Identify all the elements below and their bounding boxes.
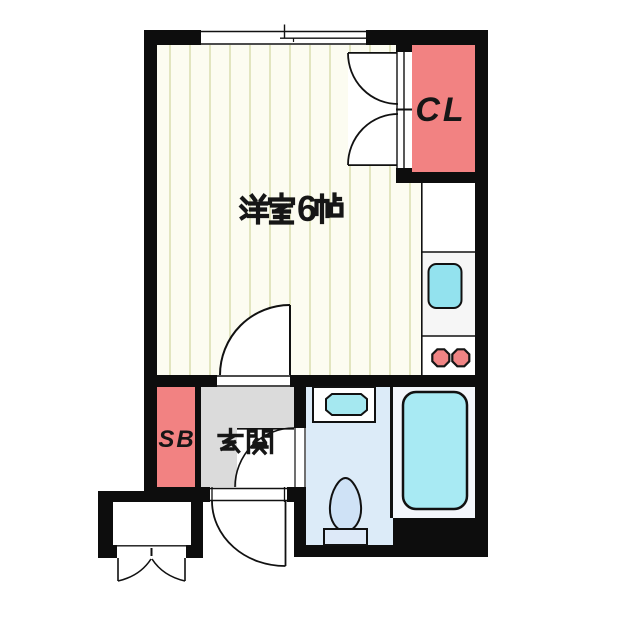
svg-text:CL: CL xyxy=(415,91,466,129)
svg-text:SB: SB xyxy=(158,426,195,453)
svg-text:6: 6 xyxy=(297,188,317,229)
